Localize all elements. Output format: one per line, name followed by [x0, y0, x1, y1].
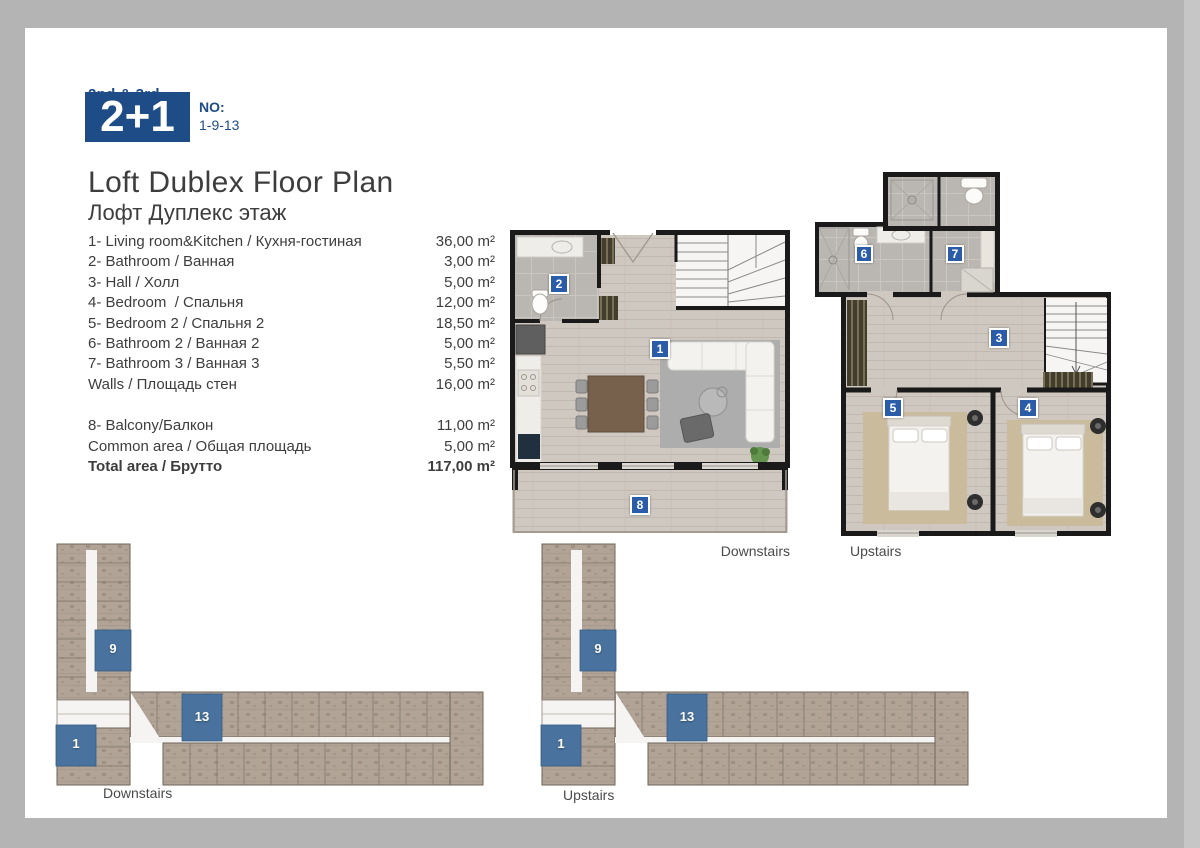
unit-number-block: NO: 1-9-13 — [199, 98, 239, 134]
room-row: 2- Bathroom / Ванная3,00 m² — [88, 252, 495, 272]
site-unit-9: 9 — [586, 641, 610, 656]
room-badge-bedroom: 4 — [1018, 398, 1038, 418]
room-row: Walls / Площадь стен16,00 m² — [88, 375, 495, 395]
no-value: 1-9-13 — [199, 116, 239, 134]
room-badge-balcony: 8 — [630, 495, 650, 515]
room-badge-bathroom2: 6 — [855, 245, 873, 263]
room-row: 7- Bathroom 3 / Ванная 35,50 m² — [88, 354, 495, 374]
room-badge-living: 1 — [650, 339, 670, 359]
building-plan-downstairs: 9 13 1 — [35, 542, 485, 787]
room-badge-bathroom3: 7 — [946, 245, 964, 263]
room-row: 4- Bedroom / Спальня12,00 m² — [88, 293, 495, 313]
room-row: Common area / Общая площадь5,00 m² — [88, 437, 495, 457]
page-title: Loft Dublex Floor Plan — [88, 166, 394, 200]
room-row: 1- Living room&Kitchen / Кухня-гостиная3… — [88, 232, 495, 252]
room-row: 3- Hall / Холл5,00 m² — [88, 273, 495, 293]
building-plan-upstairs: 9 13 1 — [520, 542, 970, 787]
room-row: 5- Bedroom 2 / Спальня 218,50 m² — [88, 314, 495, 334]
downstairs-floor-plan: 2 1 8 — [510, 230, 790, 540]
room-badge-hall: 3 — [989, 328, 1009, 348]
site-unit-13: 13 — [190, 709, 214, 724]
page-title-ru: Лофт Дуплекс этаж — [88, 200, 286, 226]
site-unit-1: 1 — [64, 736, 88, 751]
floor-plan-sheet: 2nd & 3rd 2+1 NO: 1-9-13 Loft Dublex Flo… — [25, 28, 1167, 818]
room-area-list: 1- Living room&Kitchen / Кухня-гостиная3… — [88, 232, 495, 477]
site-unit-1: 1 — [549, 736, 573, 751]
no-label: NO: — [199, 98, 239, 116]
room-badge-bathroom: 2 — [549, 274, 569, 294]
room-row: 8- Balcony/Балкон11,00 m² — [88, 416, 495, 436]
site-downstairs-label: Downstairs — [103, 785, 172, 801]
room-badge-bedroom2: 5 — [883, 398, 903, 418]
room-row: 6- Bathroom 2 / Ванная 25,00 m² — [88, 334, 495, 354]
upstairs-floor-plan: 6 7 3 5 4 — [815, 172, 1111, 540]
building-downstairs-drawing — [35, 542, 485, 787]
building-upstairs-drawing — [520, 542, 970, 787]
upstairs-plan-drawing — [815, 172, 1111, 540]
site-unit-9: 9 — [101, 641, 125, 656]
site-upstairs-label: Upstairs — [563, 787, 614, 803]
total-area-row: Total area / Брутто117,00 m² — [88, 457, 495, 477]
unit-type-badge: 2+1 — [85, 92, 190, 142]
site-unit-13: 13 — [675, 709, 699, 724]
